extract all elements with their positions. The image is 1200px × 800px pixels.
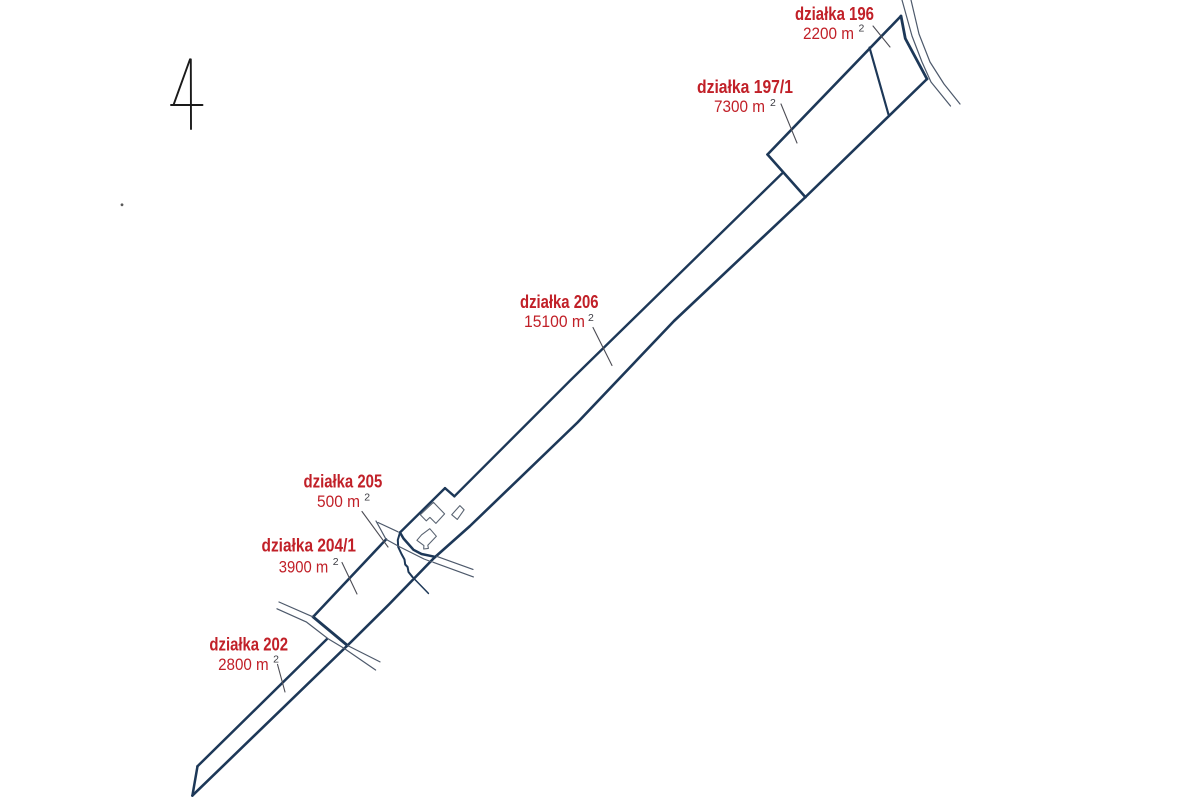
svg-text:7300 m: 7300 m [714,98,765,116]
svg-text:2: 2 [588,312,594,324]
svg-text:2: 2 [859,22,865,34]
svg-text:2800 m: 2800 m [218,656,269,674]
svg-text:działka 202: działka 202 [209,635,288,655]
svg-text:2: 2 [273,654,279,666]
svg-text:działka 206: działka 206 [520,292,599,312]
svg-text:500 m: 500 m [317,493,360,511]
svg-text:działka 197/1: działka 197/1 [697,77,793,97]
svg-text:3900 m: 3900 m [279,558,329,576]
svg-text:działka 205: działka 205 [304,472,383,492]
svg-text:2: 2 [364,491,370,503]
svg-text:2200 m: 2200 m [803,25,854,43]
svg-text:2: 2 [333,556,339,568]
svg-text:działka 204/1: działka 204/1 [262,535,357,555]
svg-text:15100 m: 15100 m [524,313,585,331]
svg-text:działka 196: działka 196 [795,4,874,24]
svg-text:2: 2 [770,97,776,109]
